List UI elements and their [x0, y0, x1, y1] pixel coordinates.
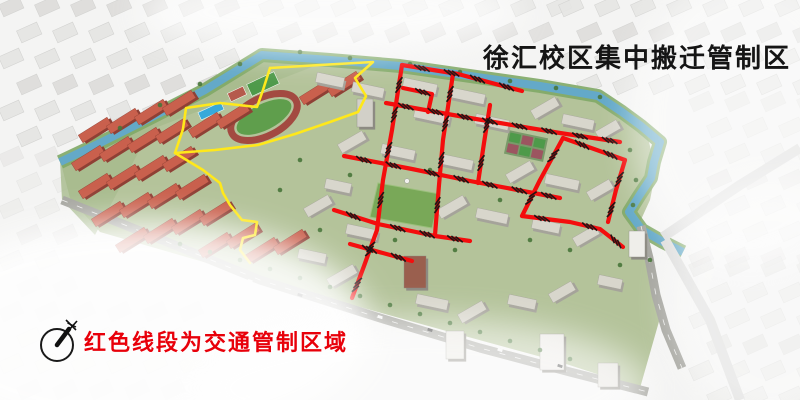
- compass-north-icon: [36, 314, 84, 366]
- tree: [634, 178, 639, 183]
- tree: [628, 148, 633, 153]
- tower-building: [357, 99, 373, 127]
- tree: [568, 248, 573, 253]
- tree: [418, 312, 423, 317]
- legend-text: 红色线段为交通管制区域: [84, 325, 348, 357]
- tree: [388, 303, 393, 308]
- tree: [298, 158, 303, 163]
- tree: [648, 258, 653, 263]
- tree: [508, 79, 513, 84]
- tree: [453, 248, 458, 253]
- tree: [393, 238, 398, 243]
- tree: [528, 238, 533, 243]
- tree: [158, 103, 163, 108]
- tree: [238, 62, 243, 67]
- tree: [618, 263, 623, 268]
- campus-map-screenshot: 徐汇校区集中搬迁管制区 红色线段为交通管制区域: [0, 0, 800, 400]
- tree: [348, 56, 353, 61]
- tree: [278, 188, 283, 193]
- map-title: 徐汇校区集中搬迁管制区: [483, 38, 791, 75]
- tower-building: [629, 231, 645, 257]
- tree: [198, 82, 203, 87]
- tree: [554, 86, 559, 91]
- tree: [348, 173, 353, 178]
- tree: [318, 228, 323, 233]
- monument: [405, 179, 410, 184]
- tree: [118, 126, 123, 131]
- tree: [598, 95, 603, 100]
- tree: [498, 198, 503, 203]
- tree: [631, 203, 636, 208]
